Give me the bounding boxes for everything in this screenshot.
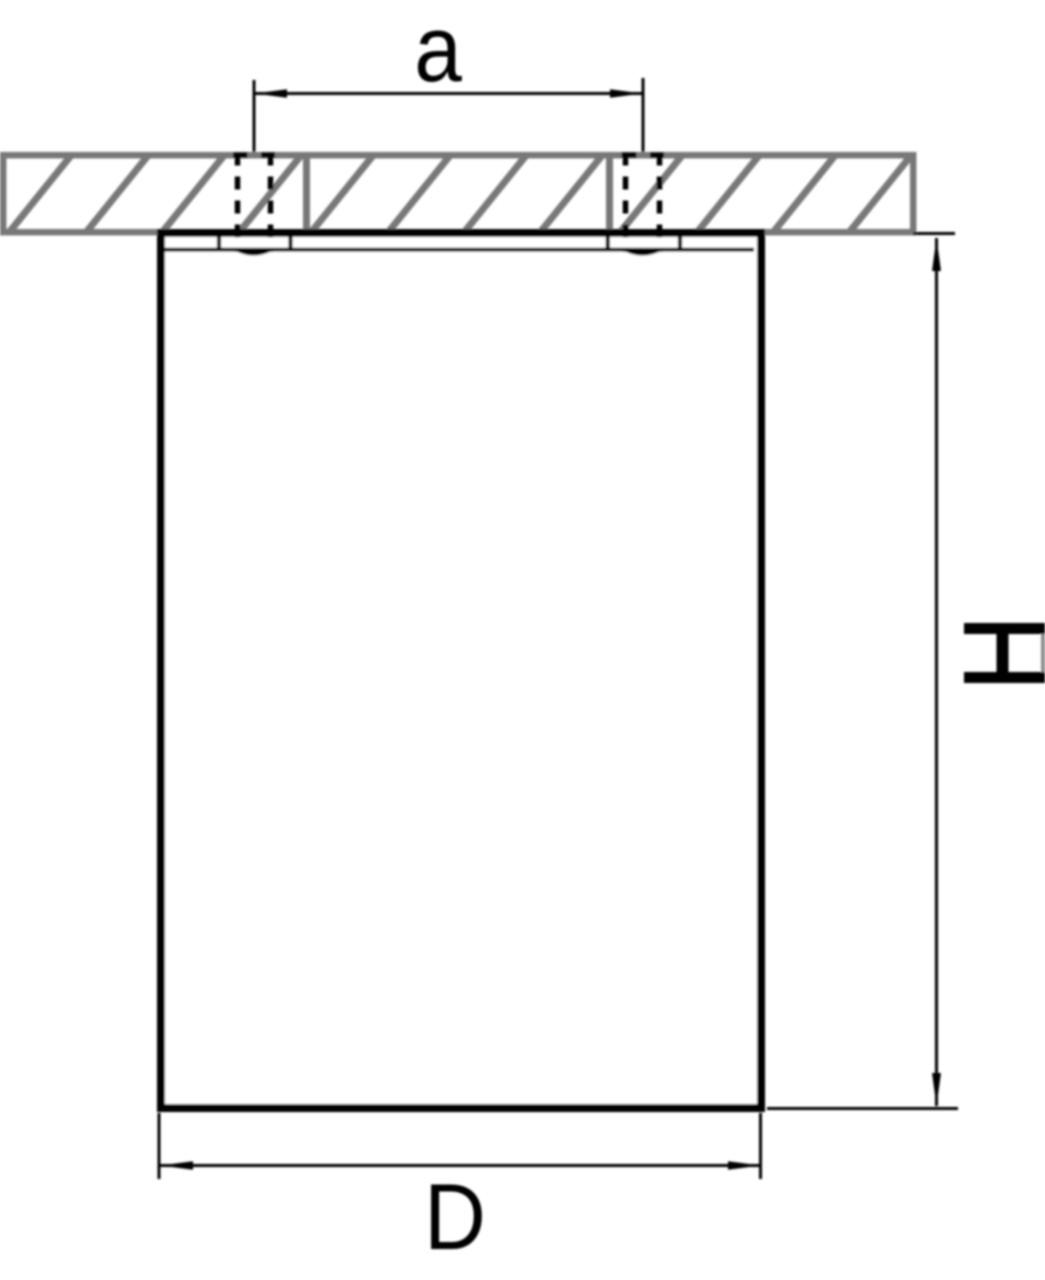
svg-text:a: a [414, 0, 462, 102]
svg-text:D: D [424, 1165, 486, 1270]
